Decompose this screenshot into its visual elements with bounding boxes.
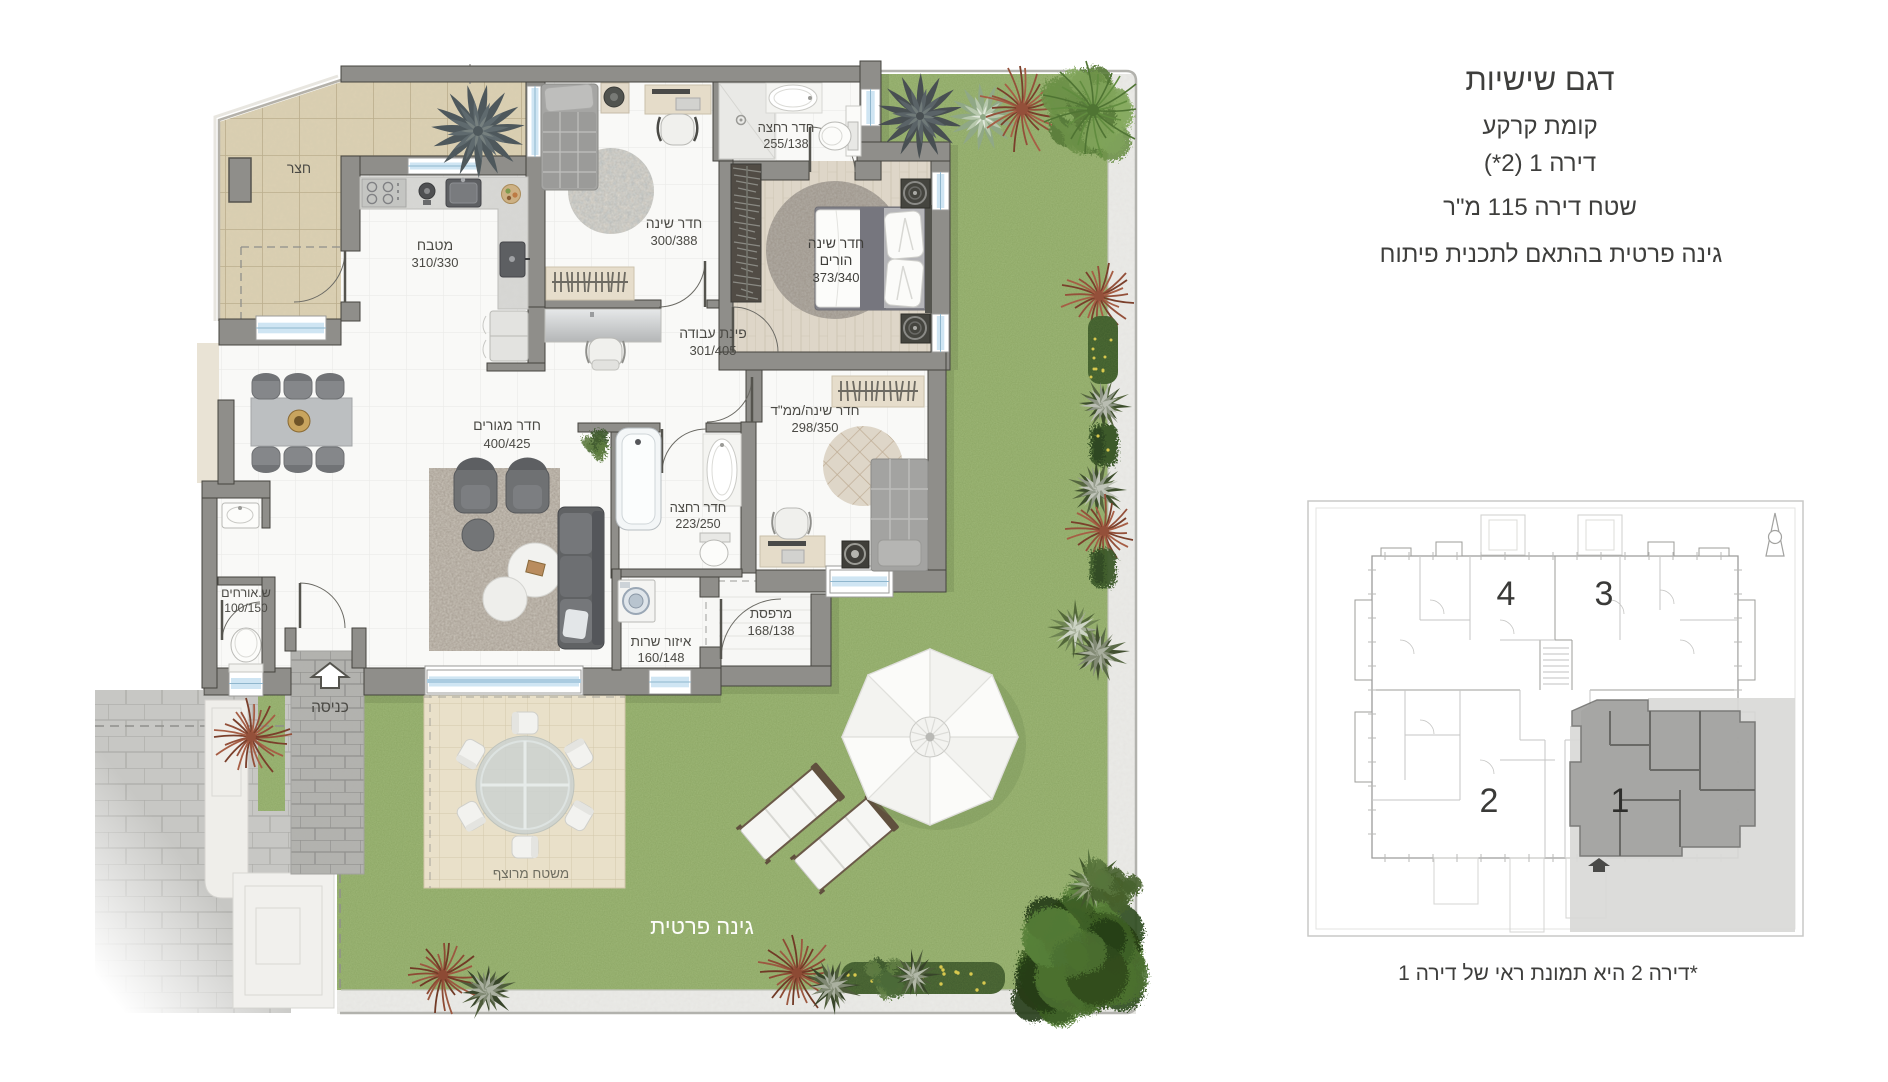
svg-text:גינה פרטית בהתאם לתכנית פיתוח: גינה פרטית בהתאם לתכנית פיתוח (1380, 241, 1723, 268)
svg-text:מטבח: מטבח (417, 237, 453, 253)
svg-text:300/388: 300/388 (651, 233, 698, 248)
svg-text:ש.אורחים: ש.אורחים (221, 586, 271, 600)
svg-text:פינת עבודה: פינת עבודה (679, 325, 747, 341)
svg-text:1: 1 (1611, 782, 1630, 820)
svg-text:301/405: 301/405 (690, 343, 737, 358)
svg-text:*דירה 2 היא תמונת ראי של דירה: *דירה 2 היא תמונת ראי של דירה 1 (1398, 962, 1698, 985)
svg-text:2: 2 (1480, 782, 1499, 820)
svg-text:חצר: חצר (287, 160, 311, 176)
svg-text:223/250: 223/250 (675, 517, 720, 531)
svg-text:100/150: 100/150 (224, 601, 268, 615)
svg-text:כניסה: כניסה (311, 699, 349, 716)
svg-text:קומת קרקע: קומת קרקע (1482, 113, 1597, 140)
svg-text:חדר רחצה: חדר רחצה (758, 120, 815, 135)
svg-text:איזור שרות: איזור שרות (631, 634, 692, 649)
svg-text:298/350: 298/350 (792, 420, 839, 435)
svg-text:310/330: 310/330 (412, 255, 459, 270)
svg-text:3: 3 (1595, 575, 1614, 613)
svg-text:גינה פרטית: גינה פרטית (650, 914, 754, 939)
svg-text:255/138: 255/138 (763, 137, 808, 151)
svg-text:חדר רחצה: חדר רחצה (670, 500, 727, 515)
svg-text:168/138: 168/138 (748, 623, 795, 638)
svg-text:373/340: 373/340 (813, 270, 860, 285)
svg-text:הורים: הורים (820, 252, 853, 268)
svg-text:חדר שינה: חדר שינה (808, 235, 865, 251)
svg-text:מרפסת: מרפסת (750, 606, 792, 621)
svg-text:חדר שינה/ממ"ד: חדר שינה/ממ"ד (770, 403, 859, 418)
svg-text:חדר מגורים: חדר מגורים (473, 417, 541, 433)
svg-text:משטח מרוצף: משטח מרוצף (493, 866, 569, 881)
svg-text:4: 4 (1497, 575, 1516, 613)
svg-text:400/425: 400/425 (484, 436, 531, 451)
svg-text:דגם שישיות: דגם שישיות (1465, 62, 1614, 97)
svg-text:דירה 1 (2*): דירה 1 (2*) (1484, 150, 1596, 177)
svg-text:160/148: 160/148 (638, 650, 685, 665)
svg-text:חדר שינה: חדר שינה (646, 215, 703, 231)
svg-text:שטח דירה 115 מ"ר: שטח דירה 115 מ"ר (1443, 194, 1637, 221)
